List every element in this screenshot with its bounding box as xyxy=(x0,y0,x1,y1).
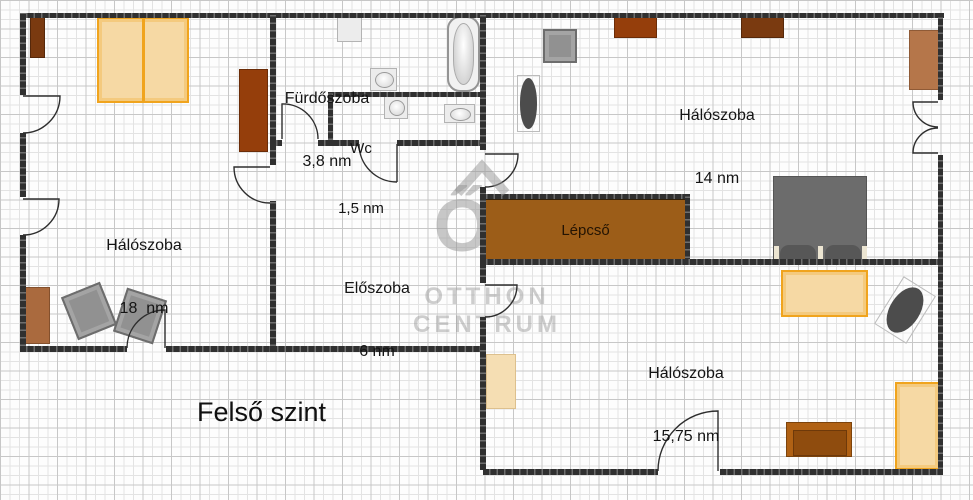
room-name: Hálószoba xyxy=(106,235,182,256)
room-label-haloszoba-14: Hálószoba 14 nm xyxy=(679,63,755,231)
watermark-otthon: OTTHON xyxy=(412,283,562,311)
door-arc xyxy=(485,154,518,187)
double-bed xyxy=(97,17,189,103)
bathtub-basin xyxy=(453,23,474,85)
room-area: 1,5 nm xyxy=(338,199,384,219)
toilet xyxy=(384,96,408,119)
wall-bath-bottom-1 xyxy=(270,140,282,146)
wall-bottom-right-1 xyxy=(483,469,658,475)
plant-leaves xyxy=(879,281,931,339)
armchair xyxy=(543,29,577,63)
plant xyxy=(874,276,936,344)
dresser xyxy=(25,287,50,344)
plant xyxy=(517,75,540,132)
room-area: 18 nm xyxy=(106,298,182,319)
watermark-centrum: CENTRUM xyxy=(412,311,562,339)
sink xyxy=(370,68,397,91)
floor-plan: ŐC OTTHON CENTRUM Lépcső xyxy=(0,0,973,500)
stairs-area: Lépcső xyxy=(484,199,687,261)
bathtub xyxy=(447,16,480,92)
cabinet xyxy=(486,354,516,409)
wall-bedroom14-bottom xyxy=(480,259,938,265)
wall-outer-left-1 xyxy=(20,13,26,95)
cabinet xyxy=(239,69,268,152)
wall-stairs-top xyxy=(480,194,690,199)
room-area: 6 nm xyxy=(344,341,410,362)
room-area: 14 nm xyxy=(679,168,755,189)
room-label-wc: Wc 1,5 nm xyxy=(338,99,384,259)
wall-outer-right-2 xyxy=(938,155,943,475)
door-arc xyxy=(23,96,60,133)
door-arc xyxy=(913,102,938,127)
door-arc xyxy=(23,199,59,235)
floor-title: Felső szint xyxy=(197,397,326,428)
sofa-seat xyxy=(793,430,847,456)
room-area: 15,75 nm xyxy=(648,426,724,447)
room-name: Hálószoba xyxy=(679,105,755,126)
door-arc xyxy=(234,167,270,203)
wall-bedroom18-right-2 xyxy=(270,201,276,352)
wardrobe xyxy=(30,17,45,58)
room-name: Előszoba xyxy=(344,278,410,299)
sink-basin xyxy=(375,72,394,88)
wall-outer-left-3 xyxy=(20,235,26,352)
room-label-haloszoba-1575: Hálószoba 15,75 nm xyxy=(648,321,724,489)
sofa xyxy=(786,422,852,457)
bidet xyxy=(444,104,475,123)
wall-center-vertical-1 xyxy=(480,13,486,150)
room-name: Wc xyxy=(338,139,384,159)
bidet-bowl xyxy=(450,108,471,121)
wall-center-vertical-2 xyxy=(480,187,486,283)
room-label-eloszoba: Előszoba 6 nm xyxy=(344,236,410,404)
room-label-haloszoba-18: Hálószoba 18 nm xyxy=(106,193,182,361)
double-bed-gray xyxy=(773,176,867,262)
toilet-bowl xyxy=(389,100,405,116)
dresser xyxy=(614,15,657,38)
single-bed xyxy=(781,270,868,317)
wall-bath-bottom-3 xyxy=(397,140,486,146)
room-name: Hálószoba xyxy=(648,363,724,384)
wall-center-vertical-3 xyxy=(480,317,486,470)
wall-outer-right-1 xyxy=(938,13,943,100)
bed-divider xyxy=(142,19,145,101)
washing-machine xyxy=(337,16,362,42)
cabinet xyxy=(909,30,939,90)
single-bed xyxy=(895,382,940,470)
dresser xyxy=(741,15,784,38)
plant-leaves xyxy=(520,78,538,129)
door-arc xyxy=(913,128,938,153)
wall-bottom-right-2 xyxy=(720,469,943,475)
wall-bottom-left-2 xyxy=(166,346,485,352)
wall-outer-left-2 xyxy=(20,133,26,197)
stairs-label: Lépcső xyxy=(561,222,609,239)
